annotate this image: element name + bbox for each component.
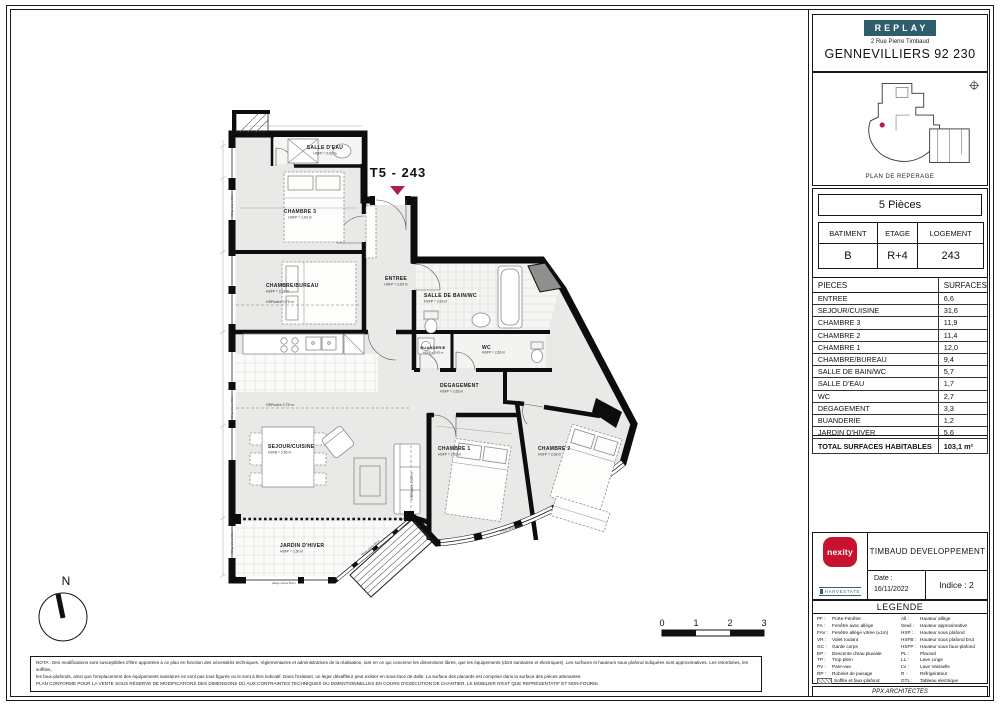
kitchen-tiles [236,354,378,392]
room-label-entree: ENTREE [385,276,407,282]
room-label-sejour: SEJOUR/CUISINE [268,444,315,450]
legend-entry: HSP :Hauteur sous plafond [901,630,975,637]
unit-title-group: T5 - 243 [370,165,426,195]
logo-column: nexity HARVESTATE [813,533,868,599]
window-sill-label-4: Allège pleine 60cm [272,581,296,585]
scale-tick-1: 1 [693,618,698,628]
window-sill-label-1: Allège pleine 60cm [230,193,234,217]
scale-tick-0: 0 [659,618,664,628]
nota-box: NOTA : Des modifications sont susceptibl… [30,656,762,692]
bat-header-logement: LOGEMENT [918,223,984,244]
nota-line-2: les faux-plafonds, ainsi que l'emplaceme… [36,674,756,681]
surf-piece: CHAMBRE 2 [812,329,938,341]
legend-right-column: All :Hauteur allège Seuil :Hauteur appro… [901,616,975,685]
surf-header-surfaces: SURFACES [938,278,987,293]
room-label-chambre1: CHAMBRE 1 [438,446,470,452]
project-header: REPLAY 2 Rue Pierre Timbaud GENNEVILLIER… [812,14,988,72]
bat-header-batiment: BATIMENT [819,223,878,244]
legend-left-column: PF :Porte-Fenêtre FA :Fenêtre avec allèg… [817,616,901,685]
surf-value: 1,2 [938,414,987,426]
table-row: SALLE DE BAIN/WC5,7 [812,366,987,378]
legend-entry: Seuil :Hauteur approximative [901,623,975,630]
indice-cell: Indice : 2 [926,571,987,599]
legend-entry: HSFB :Hauteur sous plafond brut [901,637,975,644]
table-row: WC2,7 [812,390,987,402]
surf-piece: JARDIN D'HIVER [812,427,938,439]
room-label-chambre3: CHAMBRE 3 [284,209,316,215]
room-sub-wc: HSFP = 2,63 m [482,351,505,355]
unit-title: T5 - 243 [370,165,426,180]
key-plan-compass-icon [969,80,979,90]
legend-entry: RP :Robinet de puisage [817,671,901,678]
room-label-sdb: SALLE DE BAIN/WC [424,293,477,299]
room-sub-buanderie: HSFP = 2,63 m [423,351,444,355]
entrance-marker-triangle [390,186,405,195]
surf-piece: WC [812,390,938,402]
legend-entry: All :Hauteur allège [901,616,975,623]
room-sub-jardin: HSFP = 2,50 m [280,550,303,554]
surf-piece: SALLE DE BAIN/WC [812,366,938,378]
surf-value: 6,6 [938,293,987,305]
nota-line-1: NOTA : Des modifications sont susceptibl… [36,660,756,674]
surfaces-total-label: TOTAL SURFACES HABITABLES [812,439,938,454]
date-value: 16/11/2022 [874,586,909,593]
surf-value: 9,4 [938,353,987,365]
key-plan-drawing [813,73,987,169]
legend-entry: PV :Pare-vue [817,664,901,671]
legend-entry: LV :Lave Vaisselle [901,664,975,671]
legend-entry: GC :Garde corps [817,644,901,651]
bat-value-logement: 243 [918,244,984,269]
surf-value: 2,7 [938,390,987,402]
brand-logo: REPLAY [864,20,937,36]
legend-entry: GTL :Tableau electrique [901,678,975,685]
room-sub-chambre3: HSFP = 2,63 m [288,216,311,220]
harvestate-label: HARVESTATE [825,589,860,594]
nota-line-3: PLAN CONFORME POUR LA VENTE SOUS RÉSERVE… [36,681,756,688]
surf-piece: BUANDERIE [812,414,938,426]
room-sub-salle-deau: HSFP = 2,63 m [313,152,336,156]
beam-label-2: HSPoutre 2,75 m [266,403,294,407]
table-row: CHAMBRE 112,0 [812,341,987,353]
window-sill-label-2: Allège pleine 60cm [230,395,234,419]
beam-label-3: HSPoutre 2,65 m [410,472,414,500]
room-sub-sejour: HSFB = 2,65 m [268,451,291,455]
project-address: 2 Rue Pierre Timbaud [813,39,987,45]
developer-name: TIMBAUD DEVELOPPEMENT [868,533,987,571]
table-row: CHAMBRE 211,4 [812,329,987,341]
room-sub-degagement: HSFP = 2,63 m [440,390,463,394]
legend-entry: PF :Porte-Fenêtre [817,616,901,623]
bat-header-etage: ETAGE [877,223,918,244]
legend-box: LEGENDE PF :Porte-Fenêtre FA :Fenêtre av… [812,600,988,684]
table-row: CHAMBRE/BUREAU9,4 [812,353,987,365]
key-plan-caption: PLAN DE REPERAGE [813,174,987,180]
table-row: JARDIN D'HIVER5,6 [812,427,987,439]
unit-info-panel: 5 Pièces BATIMENT ETAGE LOGEMENT B R+4 2… [812,188,988,436]
legend-entry: EP :Descente d'eau pluviale [817,651,901,658]
nexity-logo: nexity [823,537,857,567]
surf-piece: DEGAGEMENT [812,402,938,414]
legend-title: LEGENDE [813,601,987,614]
building-table: BATIMENT ETAGE LOGEMENT B R+4 243 [818,222,984,269]
plan-sheet: SALLE D'EAU HSFP = 2,63 m CHAMBRE 3 HSFP… [0,0,1000,706]
surf-piece: ENTREE [812,293,938,305]
unit-type-label: 5 Pièces [818,194,982,216]
date-cell: Date : 16/11/2022 [868,571,926,599]
project-city: GENNEVILLIERS 92 230 [813,47,987,61]
harvestate-flag-icon [820,589,823,594]
legend-entry: HSFP :Hauteur sous faux-plafond [901,644,975,651]
room-sub-chambre1: HSFP = 2,63 m [438,453,461,457]
soffite-hatch-swatch [817,678,832,684]
room-sub-entree: HSFP = 2,63 m [384,283,407,287]
surf-value: 31,6 [938,305,987,317]
legend-entry: LL :Lave Linge [901,657,975,664]
surfaces-total-row: TOTAL SURFACES HABITABLES 103,1 m² [812,439,987,454]
bat-value-batiment: B [819,244,878,269]
room-label-chambre-bureau: CHAMBRE/BUREAU [266,283,319,289]
surfaces-table: PIECES SURFACES ENTREE6,6 SEJOUR/CUISINE… [812,277,988,454]
date-label: Date : [874,575,893,582]
room-sub-sdb: HSFP = 2,63 m [424,300,447,304]
legend-entry: FAV :Fenêtre allège vitrée (±1m) [817,630,901,637]
beam-label-1: HSPoutre 2,75 m [266,300,294,304]
surfaces-total-value: 103,1 m² [938,439,987,454]
legend-entry: FA :Fenêtre avec allège [817,623,901,630]
room-label-buanderie: BUANDERIE [420,346,445,350]
surf-piece: CHAMBRE 3 [812,317,938,329]
room-label-degagement: DEGAGEMENT [440,383,479,389]
table-row: SALLE D'EAU1,7 [812,378,987,390]
surf-value: 5,6 [938,427,987,439]
unit-location-dot [880,122,885,127]
surf-header-pieces: PIECES [812,278,938,293]
legend-entry: TP :Trop plein [817,657,901,664]
surf-piece: SEJOUR/CUISINE [812,305,938,317]
scale-tick-3: 3 [761,618,766,628]
surf-value: 11,4 [938,329,987,341]
legend-entry: PL :Placard [901,651,975,658]
table-row: BUANDERIE1,2 [812,414,987,426]
surf-value: 5,7 [938,366,987,378]
bat-value-etage: R+4 [877,244,918,269]
scale-bar: 0 1 2 3 [659,618,766,636]
surf-piece: CHAMBRE 1 [812,341,938,353]
harvestate-logo: HARVESTATE [819,587,861,596]
title-block: nexity HARVESTATE TIMBAUD DEVELOPPEMENT … [812,532,988,600]
compass-n-label: N [62,574,71,588]
legend-entry-soffite: Soffite et faux-plafond [817,678,901,685]
room-label-chambre2: CHAMBRE 2 [538,446,570,452]
table-row: CHAMBRE 311,9 [812,317,987,329]
surf-piece: SALLE D'EAU [812,378,938,390]
legend-entry: R :Réfrigérateur [901,671,975,678]
room-label-jardin: JARDIN D'HIVER [280,543,324,549]
room-sub-chambre2: HSFP = 2,63 m [538,453,561,457]
surf-value: 11,9 [938,317,987,329]
table-row: ENTREE6,6 [812,293,987,305]
surf-value: 1,7 [938,378,987,390]
north-compass: N [39,574,87,641]
key-plan-box: PLAN DE REPERAGE [812,72,988,186]
table-row: SEJOUR/CUISINE31,6 [812,305,987,317]
surf-value: 12,0 [938,341,987,353]
architect-box: PPX ARCHITECTES [812,686,988,697]
surf-piece: CHAMBRE/BUREAU [812,353,938,365]
table-row: DEGAGEMENT3,3 [812,402,987,414]
scale-tick-2: 2 [727,618,732,628]
window-sill-label-3: Allège pleine 60cm [230,530,234,554]
legend-entry: VR :Volet roulant [817,637,901,644]
room-label-salle-deau: SALLE D'EAU [307,145,344,151]
room-sub-chambre-bureau: HSFP = 2,63 m [266,290,289,294]
surf-value: 3,3 [938,402,987,414]
